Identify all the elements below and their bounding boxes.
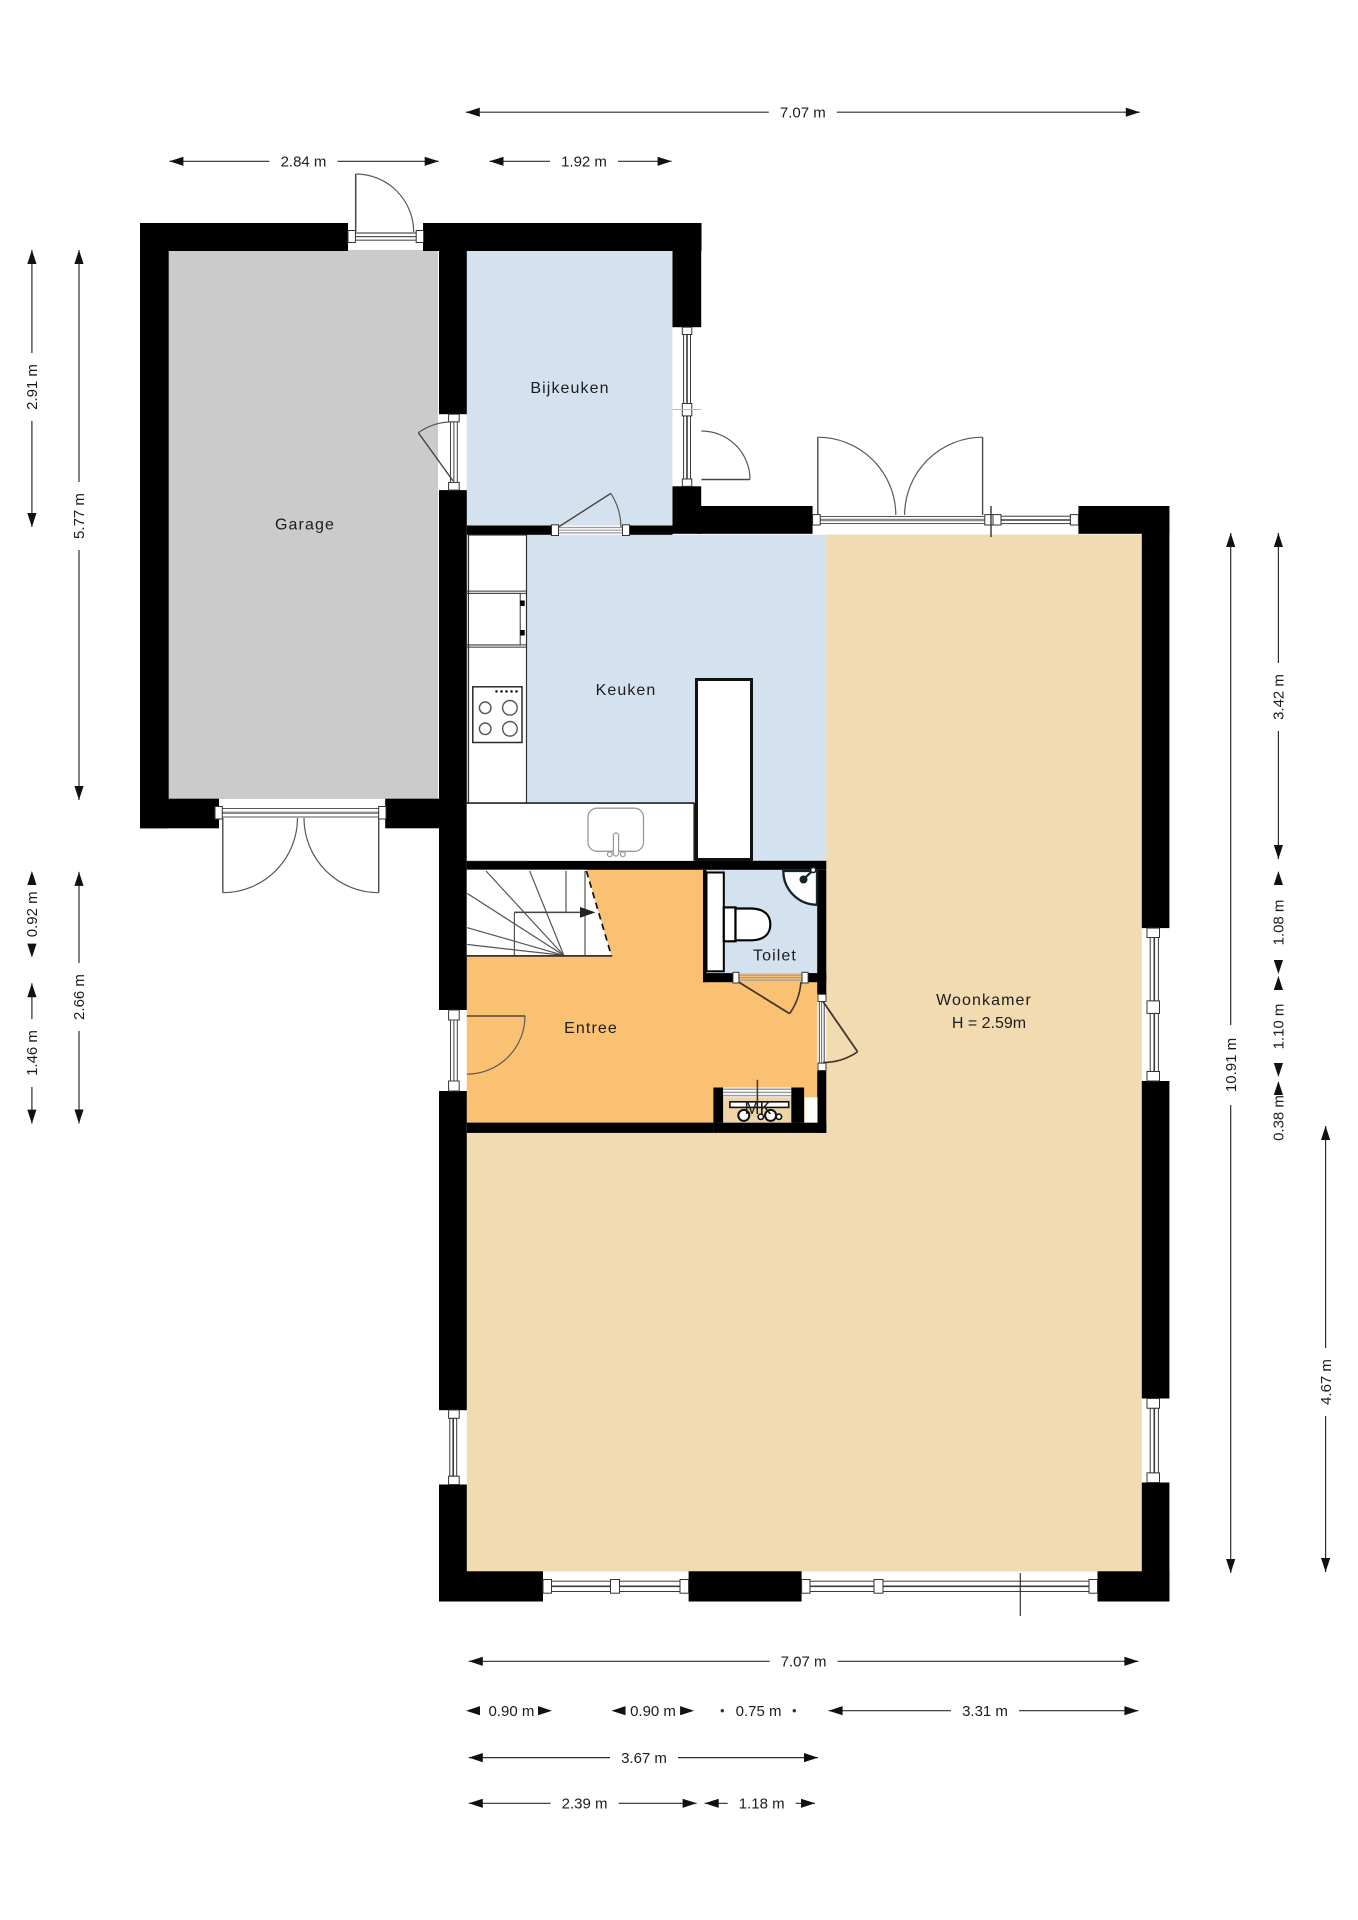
- svg-text:Entree: Entree: [564, 1020, 618, 1037]
- svg-text:2.39 m: 2.39 m: [562, 1796, 608, 1813]
- svg-text:1.18 m: 1.18 m: [739, 1796, 785, 1813]
- svg-text:MK: MK: [745, 1098, 772, 1118]
- svg-text:1.46 m: 1.46 m: [24, 1030, 41, 1076]
- svg-text:Bijkeuken: Bijkeuken: [530, 380, 609, 397]
- svg-text:3.42 m: 3.42 m: [1271, 674, 1288, 720]
- svg-text:7.07 m: 7.07 m: [781, 1654, 827, 1671]
- svg-text:0.90 m: 0.90 m: [488, 1703, 534, 1720]
- svg-text:2.84 m: 2.84 m: [281, 154, 327, 171]
- svg-text:1.10 m: 1.10 m: [1271, 1004, 1288, 1050]
- svg-text:5.77 m: 5.77 m: [71, 493, 88, 539]
- svg-text:2.91 m: 2.91 m: [24, 364, 41, 410]
- svg-text:3.67 m: 3.67 m: [621, 1750, 667, 1767]
- svg-text:0.90 m: 0.90 m: [630, 1703, 676, 1720]
- svg-text:4.67 m: 4.67 m: [1318, 1359, 1335, 1405]
- svg-text:Keuken: Keuken: [596, 682, 657, 699]
- svg-text:3.31 m: 3.31 m: [962, 1703, 1008, 1720]
- svg-text:Toilet: Toilet: [753, 948, 797, 965]
- svg-text:0.75 m: 0.75 m: [736, 1703, 782, 1720]
- svg-text:1.92 m: 1.92 m: [561, 154, 607, 171]
- svg-text:Woonkamer: Woonkamer: [936, 992, 1032, 1009]
- svg-text:H = 2.59m: H = 2.59m: [952, 1015, 1026, 1032]
- svg-text:10.91 m: 10.91 m: [1223, 1038, 1240, 1092]
- svg-text:7.07 m: 7.07 m: [780, 104, 826, 121]
- svg-text:2.66 m: 2.66 m: [71, 974, 88, 1020]
- svg-text:Garage: Garage: [275, 517, 335, 534]
- svg-text:0.92 m: 0.92 m: [24, 891, 41, 937]
- svg-text:1.08 m: 1.08 m: [1271, 900, 1288, 946]
- svg-text:0.38 m: 0.38 m: [1271, 1095, 1288, 1141]
